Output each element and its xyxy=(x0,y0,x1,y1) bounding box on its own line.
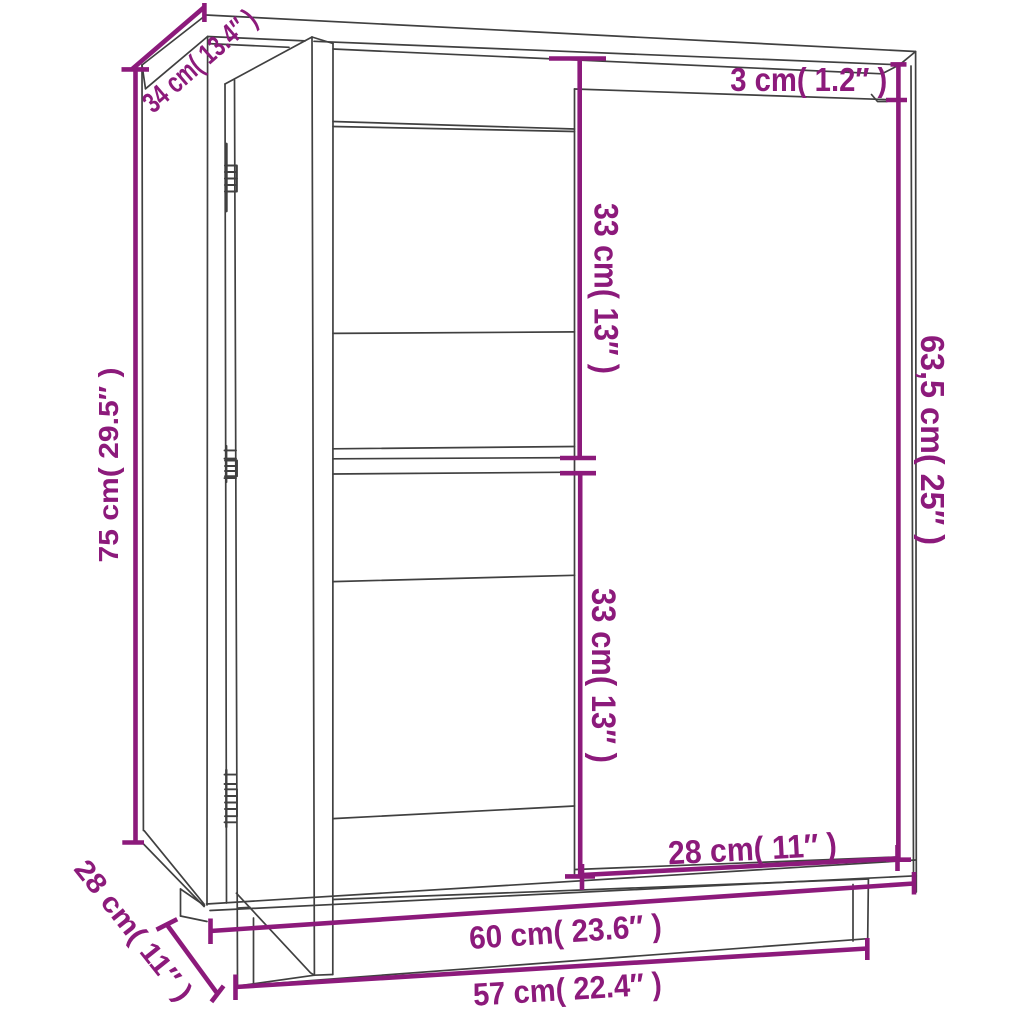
svg-text:33 cm( 13″ ): 33 cm( 13″ ) xyxy=(584,588,622,763)
svg-text:33 cm( 13″ ): 33 cm( 13″ ) xyxy=(587,203,625,374)
svg-text:60 cm( 23.6″ ): 60 cm( 23.6″ ) xyxy=(468,907,663,956)
svg-text:28 cm( 11″ ): 28 cm( 11″ ) xyxy=(68,854,199,1007)
svg-text:34 cm( 13.4″ ): 34 cm( 13.4″ ) xyxy=(137,3,264,119)
svg-text:3 cm( 1.2″ ): 3 cm( 1.2″ ) xyxy=(730,61,887,98)
svg-text:63,5 cm( 25″ ): 63,5 cm( 25″ ) xyxy=(914,335,951,545)
svg-text:75 cm( 29.5″ ): 75 cm( 29.5″ ) xyxy=(93,368,124,563)
